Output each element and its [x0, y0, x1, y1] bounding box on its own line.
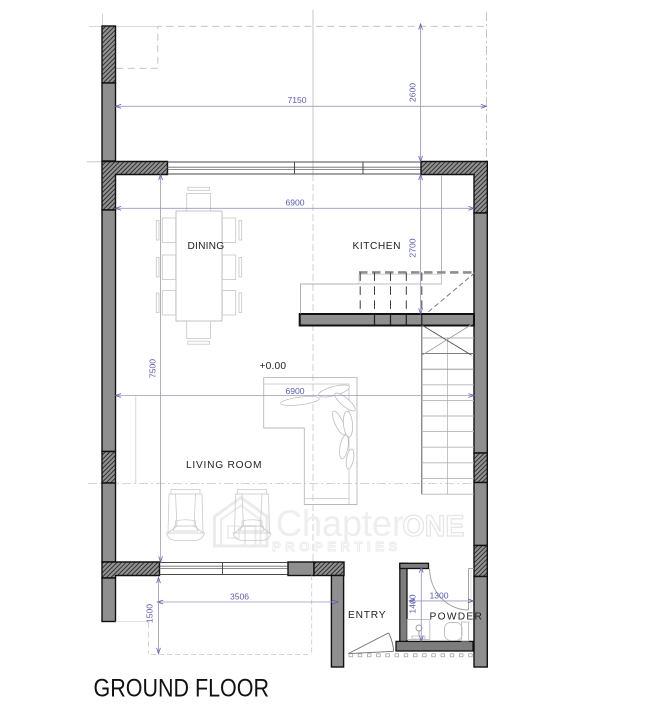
svg-text:3506: 3506 [230, 592, 249, 602]
svg-text:6900: 6900 [285, 386, 304, 396]
svg-text:2600: 2600 [408, 83, 418, 102]
svg-text:POWDER: POWDER [430, 612, 484, 623]
svg-text:1400: 1400 [408, 594, 418, 613]
svg-text:1500: 1500 [145, 604, 155, 623]
svg-text:7150: 7150 [287, 95, 306, 105]
svg-text:GROUND FLOOR: GROUND FLOOR [94, 675, 270, 703]
svg-text:6900: 6900 [285, 198, 304, 208]
svg-text:1300: 1300 [429, 591, 448, 601]
svg-text:ONE: ONE [403, 510, 465, 543]
svg-text:2700: 2700 [408, 238, 418, 257]
svg-text:Chapter: Chapter [276, 503, 404, 544]
svg-text:7500: 7500 [148, 359, 158, 378]
svg-text:KITCHEN: KITCHEN [353, 241, 402, 252]
svg-text:ENTRY: ENTRY [348, 610, 386, 621]
svg-text:LIVING ROOM: LIVING ROOM [186, 460, 262, 471]
svg-text:PROPERTIES: PROPERTIES [272, 539, 402, 554]
svg-text:DINING: DINING [188, 241, 225, 252]
svg-text:+0.00: +0.00 [260, 361, 287, 372]
